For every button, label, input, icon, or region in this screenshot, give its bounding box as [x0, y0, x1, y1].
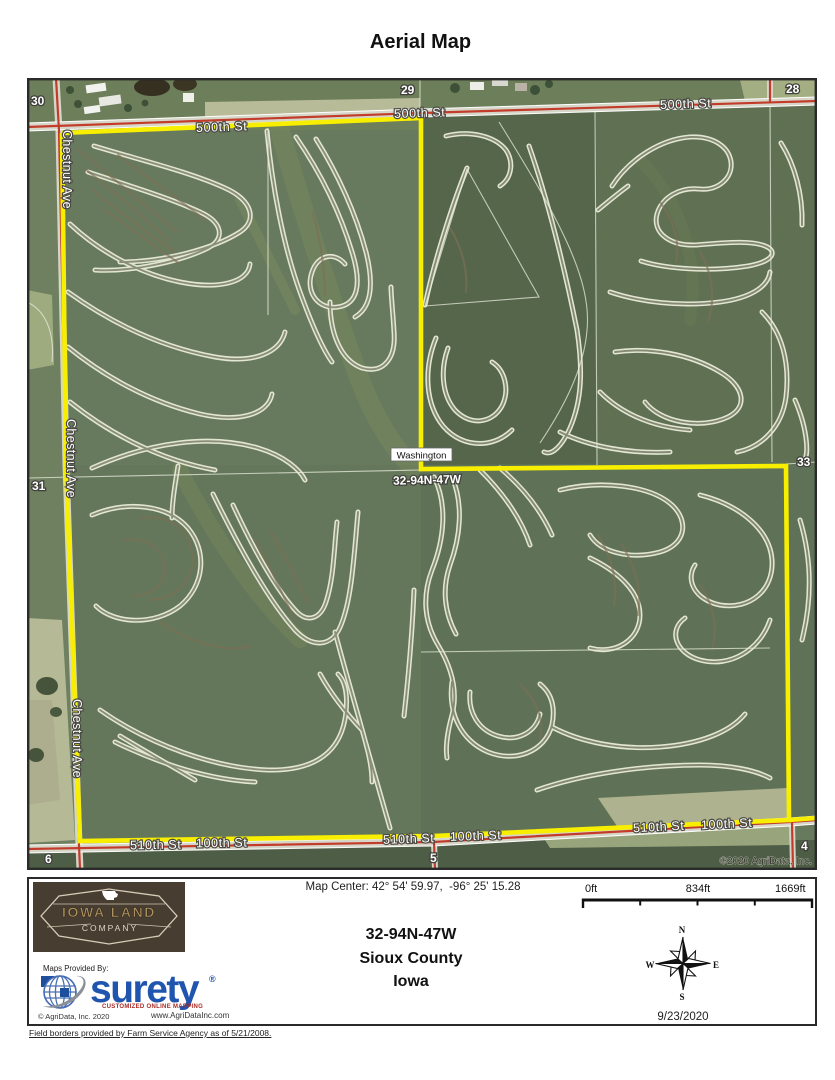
svg-text:510th St: 510th St	[383, 831, 435, 847]
svg-text:IOWA LAND: IOWA LAND	[62, 904, 156, 920]
svg-text:100th St: 100th St	[196, 836, 248, 851]
svg-text:32-94N-47W: 32-94N-47W	[393, 472, 462, 488]
svg-text:5: 5	[430, 851, 437, 865]
svg-text:Chestnut Ave: Chestnut Ave	[60, 130, 74, 209]
svg-text:30: 30	[31, 94, 45, 108]
svg-text:29: 29	[401, 83, 415, 97]
svg-text:4: 4	[801, 839, 808, 853]
svg-text:100th St: 100th St	[450, 828, 502, 844]
svg-text:COMPANY: COMPANY	[82, 923, 138, 933]
svg-text:510th St: 510th St	[130, 838, 182, 853]
svg-text:©2020 AgriData, Inc.: ©2020 AgriData, Inc.	[720, 856, 812, 867]
svg-text:Chestnut Ave: Chestnut Ave	[70, 699, 84, 778]
svg-text:31: 31	[32, 479, 46, 493]
svg-text:33: 33	[797, 455, 811, 469]
svg-text:Chestnut Ave: Chestnut Ave	[64, 419, 78, 498]
svg-text:28: 28	[786, 82, 800, 96]
svg-text:Washington: Washington	[397, 451, 447, 462]
svg-text:510th St: 510th St	[633, 819, 685, 836]
svg-text:500th St: 500th St	[394, 105, 446, 121]
svg-text:100th St: 100th St	[701, 816, 753, 833]
svg-text:500th St: 500th St	[660, 96, 712, 112]
svg-text:500th St: 500th St	[196, 119, 248, 135]
svg-text:6: 6	[45, 852, 52, 866]
